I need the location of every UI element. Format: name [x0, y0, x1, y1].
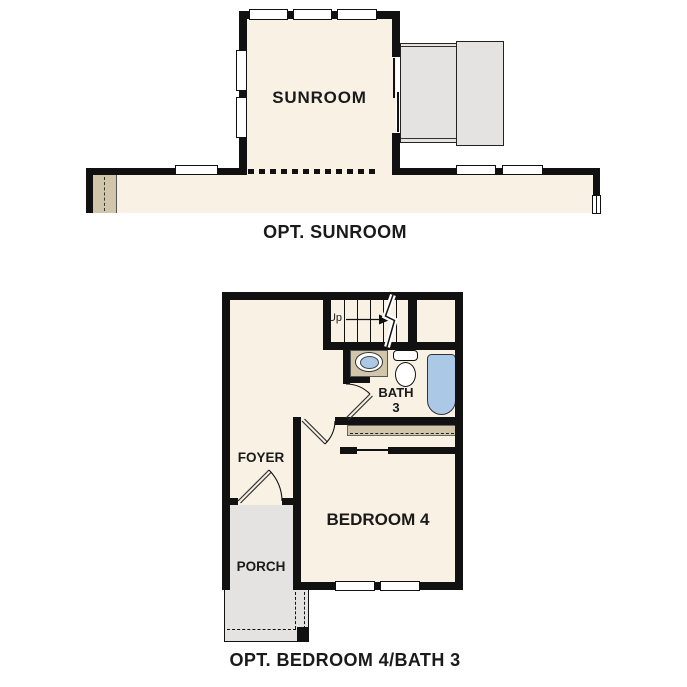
porch-slab-dashed-vertical-2 — [304, 592, 305, 629]
sunroom-room-label: SUNROOM — [247, 88, 392, 108]
stair-bottom-wall — [323, 342, 463, 350]
sunroom-right-wall-upper — [392, 11, 400, 57]
bath-left-wall — [343, 350, 350, 384]
bath-label-line2: 3 — [370, 400, 422, 415]
sunroom-caption: OPT. SUNROOM — [200, 222, 470, 243]
deck-step-left — [400, 43, 457, 143]
porch-floor — [230, 505, 293, 590]
band-top-wall-right — [400, 168, 600, 175]
band-chimney-dashed-line — [104, 177, 105, 211]
sunroom-top-window-2 — [293, 9, 332, 20]
stair-tread — [357, 300, 358, 342]
bath-halfwall-under-sink — [350, 377, 370, 383]
stair-tread — [370, 300, 371, 342]
deck-step-edge-top — [401, 46, 456, 47]
band-right-edge-window — [592, 195, 601, 214]
bath-label-line1: BATH — [370, 385, 422, 400]
house-band-floor — [93, 175, 593, 213]
sunroom-left-window-1 — [236, 50, 247, 91]
bedroom-bottom-wall-right — [420, 582, 463, 590]
toilet-bowl — [395, 362, 416, 387]
porch-slab-dashed-vertical-1 — [295, 592, 296, 629]
bedroom-window-1 — [335, 581, 375, 591]
closet-shelf — [347, 425, 457, 436]
foyer-front-wall-left — [222, 498, 238, 505]
foyer-label: FOYER — [230, 450, 292, 465]
floorplan-canvas: SUNROOM OPT. SUNROOM Up — [0, 0, 687, 687]
deck-step-edge-bottom — [401, 138, 456, 139]
band-chimney-strip — [93, 175, 117, 213]
band-window-right-2 — [502, 165, 543, 175]
sunroom-right-wall-lower — [392, 133, 400, 175]
toilet-tank — [393, 350, 418, 361]
closet-door-track — [357, 449, 388, 451]
bedroom-window-2 — [380, 581, 420, 591]
sliding-door-panel-2 — [397, 92, 399, 132]
sunroom-dashed-opening — [248, 169, 378, 174]
sunroom-top-window-1 — [249, 9, 288, 20]
plan2-left-wall — [222, 292, 230, 590]
bathtub-fixture — [427, 354, 456, 415]
stair-tread — [383, 300, 384, 342]
bedroom-label: BEDROOM 4 — [300, 510, 456, 530]
band-window-right-1 — [456, 165, 496, 175]
foyer-front-wall-right — [282, 498, 301, 505]
closet-front-wall-left — [340, 447, 357, 454]
sunroom-left-wall — [239, 11, 247, 175]
band-left-wall — [86, 168, 93, 213]
band-window-left — [175, 165, 218, 175]
plan2-right-wall — [455, 292, 463, 590]
bedroom-bottom-wall-left — [301, 582, 335, 590]
band-right-wall — [593, 168, 600, 195]
bedroom4-caption: OPT. BEDROOM 4/BATH 3 — [210, 650, 480, 671]
porch-post — [297, 627, 309, 641]
sink-basin — [360, 356, 379, 369]
sunroom-top-window-3 — [337, 9, 377, 20]
stair-tread — [396, 300, 397, 342]
sliding-door-panel-1 — [393, 58, 395, 98]
porch-label: PORCH — [230, 559, 292, 574]
closet-front-wall-right — [388, 447, 463, 454]
window-mullion — [596, 196, 597, 213]
sunroom-left-window-2 — [236, 97, 247, 138]
bath-bedroom-wall — [335, 417, 463, 425]
porch-slab-dashed-horizontal — [227, 629, 296, 630]
plan2-top-wall — [222, 292, 463, 300]
closet-rod-dashed-line — [350, 433, 454, 434]
deck-step-right — [456, 41, 504, 146]
